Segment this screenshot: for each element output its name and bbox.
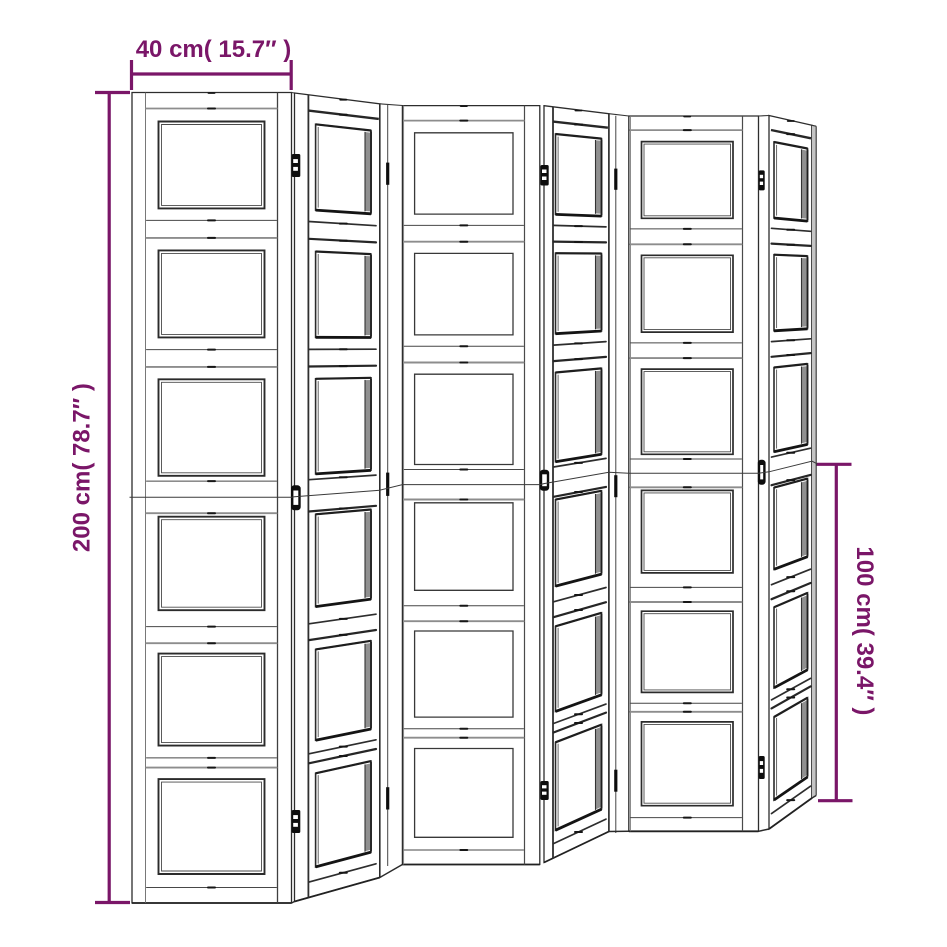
svg-text:40 cm( 15.7″ ): 40 cm( 15.7″ ) — [136, 36, 292, 63]
svg-text:100 cm( 39.4″ ): 100 cm( 39.4″ ) — [851, 546, 878, 715]
svg-text:200 cm( 78.7″ ): 200 cm( 78.7″ ) — [69, 383, 96, 552]
